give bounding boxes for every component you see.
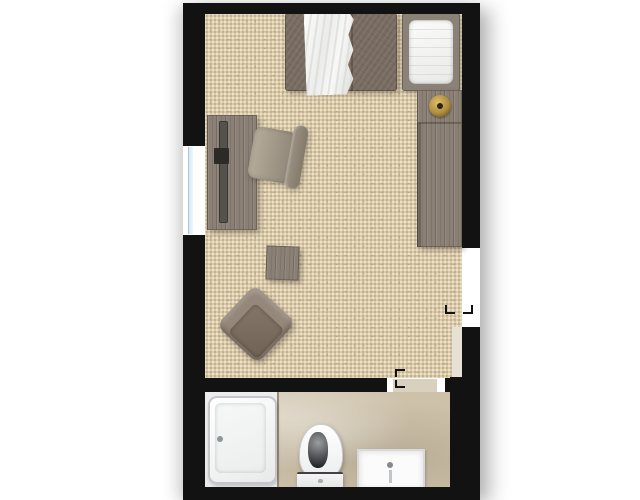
bathroom-door-jamb-right — [437, 379, 445, 392]
cot-bed — [402, 13, 460, 91]
window-glass — [188, 147, 193, 234]
armchair — [219, 287, 293, 361]
wardrobe — [417, 123, 462, 247]
toilet — [297, 424, 343, 487]
faucet-icon — [387, 462, 393, 468]
laptop — [219, 121, 228, 223]
ottoman — [265, 245, 299, 280]
entry-door-frame-mark-right — [463, 305, 473, 314]
cot-mattress — [409, 20, 453, 84]
wall-bedroom-bathroom-right — [445, 378, 465, 392]
faucet-stem — [389, 470, 392, 483]
bathroom-door-jamb-left — [387, 379, 393, 392]
toilet-flush-button — [318, 479, 323, 483]
armchair-cushion — [228, 303, 285, 360]
wall-bottom — [183, 487, 480, 500]
window-frame — [183, 146, 205, 235]
bed-blanket — [304, 9, 357, 96]
lamp-center — [437, 103, 443, 109]
wall-left-upper — [183, 3, 205, 146]
bathroom-door-frame-mark-bottom — [395, 380, 405, 388]
brass-lamp-icon — [429, 95, 451, 117]
toilet-opening — [308, 432, 328, 468]
wall-bedroom-bathroom-left — [183, 378, 387, 392]
wall-bathroom-right — [450, 377, 480, 500]
wall-right-upper — [462, 3, 480, 248]
bathroom-door-frame-mark-top — [395, 369, 405, 377]
wall-left-lower — [183, 235, 205, 500]
laptop-screen — [214, 148, 229, 164]
desk-chair — [246, 118, 311, 192]
bathtub — [208, 396, 277, 484]
bathroom-divider-line — [277, 392, 279, 487]
entry-door-recess — [452, 327, 462, 378]
floorplan-stage — [0, 0, 640, 500]
wardrobe-edge-shadow — [417, 123, 421, 247]
bathtub-drain — [217, 436, 223, 442]
wall-top — [183, 3, 480, 14]
entry-door-frame-mark-left — [445, 305, 455, 314]
washbasin — [357, 449, 425, 491]
armchair-back — [216, 284, 295, 363]
